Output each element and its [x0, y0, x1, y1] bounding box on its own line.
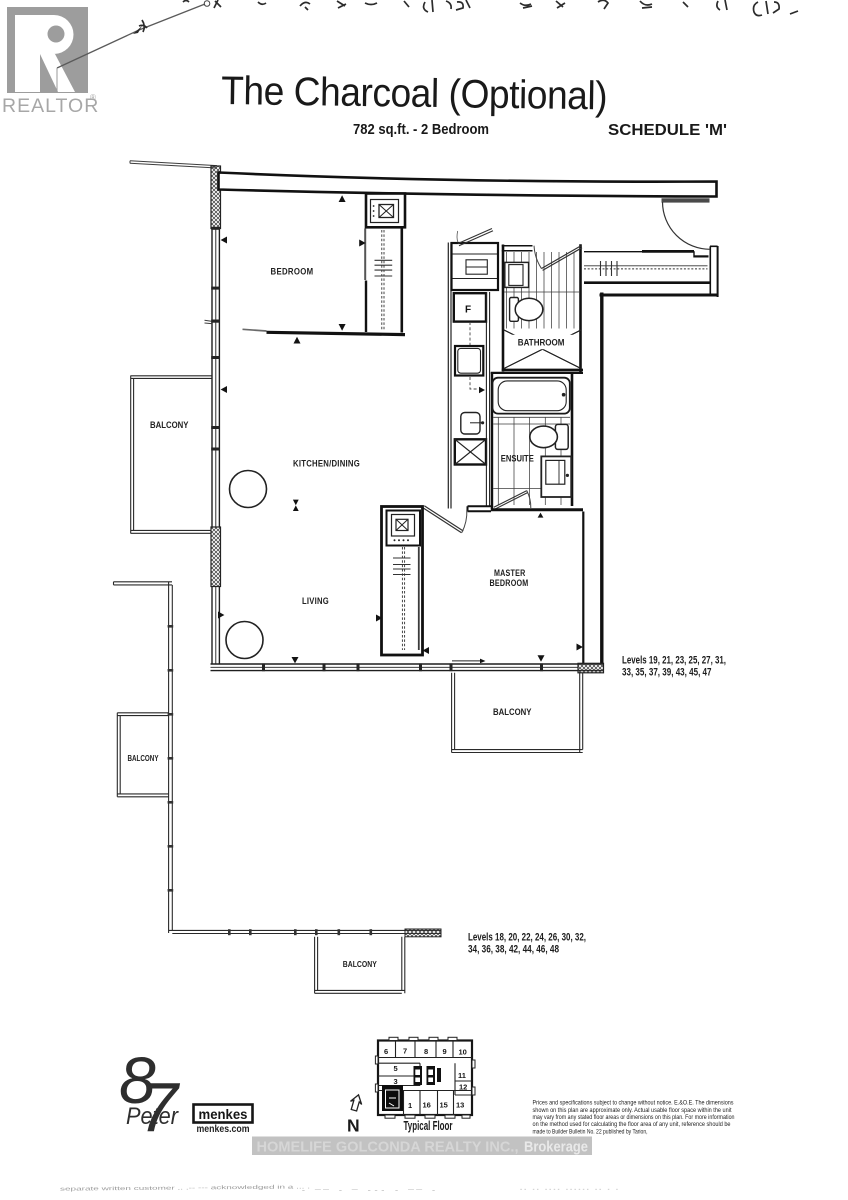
svg-text:made to Builder Bulletin No. 2: made to Builder Bulletin No. 22 publishe…: [533, 1128, 648, 1135]
svg-text:REALTOR: REALTOR: [2, 95, 99, 117]
svg-text:menkes.com: menkes.com: [197, 1123, 250, 1135]
svg-text:34, 36, 38, 42, 44, 46, 48: 34, 36, 38, 42, 44, 46, 48: [468, 943, 559, 955]
svg-text:.. .. .... ...... .. . .: .. .. .... ...... .. . .: [519, 1186, 619, 1192]
svg-text:N: N: [347, 1116, 360, 1136]
svg-text:Levels 19, 21, 23, 25, 27, 31,: Levels 19, 21, 23, 25, 27, 31,: [622, 655, 726, 667]
svg-text:BATHROOM: BATHROOM: [518, 338, 565, 349]
svg-text:BALCONY: BALCONY: [150, 420, 189, 430]
svg-text:Peter: Peter: [126, 1103, 179, 1130]
svg-text:. -- . - ... . -- .: . -- . - ... . -- .: [300, 1187, 437, 1193]
svg-text:on the method used for calcula: on the method used for calculating the f…: [533, 1121, 732, 1128]
svg-text:BEDROOM: BEDROOM: [490, 578, 529, 589]
svg-text:5: 5: [394, 1064, 398, 1073]
svg-text:3: 3: [394, 1077, 398, 1086]
svg-text:Brokerage: Brokerage: [524, 1139, 588, 1156]
svg-text:®: ®: [90, 93, 96, 102]
svg-text:HOMELIFE GOLCONDA REALTY INC.,: HOMELIFE GOLCONDA REALTY INC.,: [257, 1139, 519, 1156]
svg-text:BALCONY: BALCONY: [493, 707, 532, 717]
svg-text:BALCONY: BALCONY: [128, 754, 160, 763]
svg-text:7: 7: [403, 1047, 407, 1056]
svg-text:15: 15: [440, 1101, 448, 1110]
svg-text:ENSUITE: ENSUITE: [501, 454, 534, 464]
svg-text:KITCHEN/DINING: KITCHEN/DINING: [293, 459, 360, 470]
svg-text:1: 1: [408, 1101, 412, 1110]
svg-text:10: 10: [459, 1048, 467, 1057]
svg-text:8: 8: [424, 1047, 428, 1056]
svg-text:BEDROOM: BEDROOM: [271, 267, 314, 278]
svg-text:13: 13: [456, 1101, 464, 1110]
svg-text:SCHEDULE 'M': SCHEDULE 'M': [608, 122, 727, 139]
svg-text:LIVING: LIVING: [302, 596, 329, 607]
svg-text:Levels 18, 20, 22, 24, 26, 30: Levels 18, 20, 22, 24, 26, 30, 32,: [468, 932, 586, 944]
svg-text:F: F: [465, 305, 471, 316]
svg-text:Typical Floor: Typical Floor: [404, 1119, 453, 1133]
svg-text:33, 35, 37, 39, 43, 45, 47: 33, 35, 37, 39, 43, 45, 47: [622, 666, 712, 678]
svg-text:11: 11: [458, 1071, 466, 1080]
svg-text:16: 16: [423, 1101, 431, 1110]
svg-text:6: 6: [384, 1047, 388, 1056]
svg-text:The Charcoal (Optional): The Charcoal (Optional): [221, 69, 608, 118]
svg-text:Prices and specifications subj: Prices and specifications subject to cha…: [533, 1100, 734, 1107]
svg-text:BALCONY: BALCONY: [343, 959, 377, 969]
svg-text:9: 9: [443, 1047, 447, 1056]
svg-text:12: 12: [459, 1083, 467, 1092]
svg-text:shown on this plan are approxi: shown on this plan are approximate only.…: [533, 1107, 732, 1114]
svg-text:MASTER: MASTER: [494, 568, 526, 579]
svg-text:menkes: menkes: [199, 1107, 248, 1122]
svg-text:782 sq.ft. - 2 Bedroom: 782 sq.ft. - 2 Bedroom: [353, 121, 489, 138]
svg-text:may vary from any stated floor: may vary from any stated floor areas or …: [533, 1114, 735, 1121]
